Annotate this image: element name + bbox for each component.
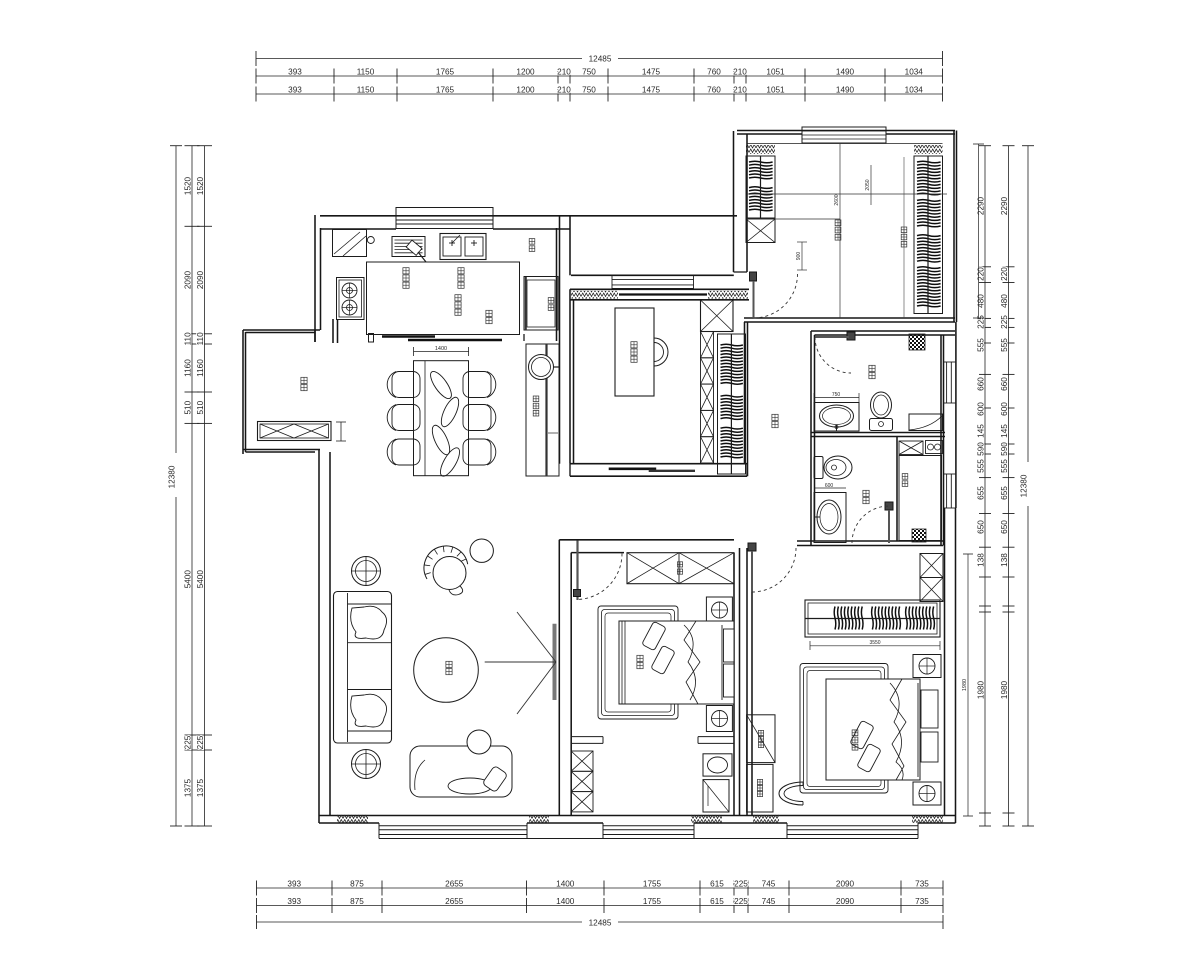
svg-text:480: 480	[977, 294, 986, 308]
svg-text:1034: 1034	[905, 68, 924, 77]
svg-text:2600: 2600	[834, 194, 840, 205]
svg-text:12485: 12485	[589, 919, 612, 928]
svg-text:555: 555	[977, 338, 986, 352]
svg-text:875: 875	[350, 880, 364, 889]
svg-text:750: 750	[582, 86, 596, 95]
svg-text:110: 110	[184, 332, 193, 345]
svg-text:393: 393	[288, 68, 302, 77]
svg-text:1034: 1034	[905, 86, 924, 95]
svg-text:1150: 1150	[357, 86, 375, 95]
svg-text:110: 110	[196, 332, 205, 345]
svg-text:12380: 12380	[1020, 474, 1029, 497]
svg-text:1520: 1520	[184, 176, 193, 195]
svg-text:600: 600	[1000, 402, 1009, 416]
svg-text:555: 555	[977, 459, 986, 473]
svg-text:220: 220	[977, 267, 986, 281]
svg-text:1520: 1520	[196, 176, 205, 195]
svg-text:2050: 2050	[865, 179, 871, 190]
svg-text:1980: 1980	[962, 679, 968, 691]
svg-text:510: 510	[196, 400, 205, 414]
svg-text:480: 480	[1000, 294, 1009, 308]
svg-text:225: 225	[1000, 315, 1009, 329]
svg-text:2290: 2290	[977, 196, 986, 215]
svg-text:1400: 1400	[556, 880, 575, 889]
svg-text:1051: 1051	[766, 86, 785, 95]
svg-text:225: 225	[977, 315, 986, 329]
svg-text:745: 745	[762, 880, 776, 889]
svg-text:555: 555	[1000, 338, 1009, 352]
svg-text:5400: 5400	[184, 570, 193, 589]
svg-text:1765: 1765	[436, 86, 455, 95]
svg-text:1980: 1980	[977, 680, 986, 699]
svg-text:655: 655	[977, 486, 986, 500]
svg-text:2090: 2090	[196, 270, 205, 289]
svg-text:750: 750	[582, 68, 596, 77]
svg-text:1375: 1375	[184, 778, 193, 797]
svg-text:875: 875	[350, 897, 364, 906]
svg-text:225: 225	[184, 735, 193, 749]
svg-text:3550: 3550	[869, 640, 880, 646]
svg-text:1490: 1490	[836, 68, 855, 77]
svg-text:600: 600	[977, 402, 986, 416]
svg-text:750: 750	[832, 392, 841, 398]
svg-text:900: 900	[796, 252, 802, 261]
svg-text:760: 760	[707, 86, 721, 95]
svg-text:735: 735	[915, 880, 929, 889]
svg-text:1755: 1755	[643, 880, 662, 889]
svg-text:1160: 1160	[184, 359, 193, 377]
svg-text:12485: 12485	[589, 55, 612, 64]
svg-text:745: 745	[762, 897, 776, 906]
svg-text:1375: 1375	[196, 778, 205, 797]
svg-text:1755: 1755	[643, 897, 662, 906]
svg-text:210: 210	[557, 68, 571, 77]
svg-text:138: 138	[977, 553, 986, 567]
svg-text:590: 590	[1000, 442, 1009, 456]
svg-text:225: 225	[734, 880, 748, 889]
svg-text:655: 655	[1000, 486, 1009, 500]
svg-text:1051: 1051	[766, 68, 785, 77]
svg-text:210: 210	[557, 86, 571, 95]
svg-text:210: 210	[733, 86, 747, 95]
svg-text:1765: 1765	[436, 68, 455, 77]
svg-text:1200: 1200	[516, 68, 535, 77]
svg-text:5400: 5400	[196, 570, 205, 589]
svg-text:2655: 2655	[445, 897, 464, 906]
svg-text:600: 600	[825, 483, 834, 489]
svg-text:1475: 1475	[642, 68, 661, 77]
svg-text:225: 225	[196, 735, 205, 749]
svg-text:2090: 2090	[836, 897, 855, 906]
svg-text:1490: 1490	[836, 86, 855, 95]
svg-text:1150: 1150	[357, 68, 375, 77]
svg-text:220: 220	[1000, 267, 1009, 281]
svg-text:393: 393	[287, 897, 301, 906]
svg-text:1400: 1400	[435, 346, 447, 352]
svg-text:650: 650	[1000, 520, 1009, 534]
svg-text:1400: 1400	[556, 897, 575, 906]
svg-text:393: 393	[288, 86, 302, 95]
svg-text:650: 650	[977, 520, 986, 534]
svg-text:393: 393	[287, 880, 301, 889]
svg-text:555: 555	[1000, 459, 1009, 473]
svg-text:12380: 12380	[168, 465, 177, 488]
svg-text:1980: 1980	[1000, 680, 1009, 699]
svg-text:2655: 2655	[445, 880, 464, 889]
svg-text:1160: 1160	[196, 359, 205, 377]
svg-text:2090: 2090	[184, 270, 193, 289]
svg-text:1475: 1475	[642, 86, 661, 95]
svg-text:210: 210	[733, 68, 747, 77]
svg-text:660: 660	[1000, 377, 1009, 391]
svg-text:2090: 2090	[836, 880, 855, 889]
svg-text:2290: 2290	[1000, 196, 1009, 215]
svg-text:145: 145	[1000, 424, 1009, 438]
svg-text:225: 225	[734, 897, 748, 906]
svg-text:510: 510	[184, 400, 193, 414]
svg-text:138: 138	[1000, 553, 1009, 567]
svg-text:760: 760	[707, 68, 721, 77]
svg-text:660: 660	[977, 377, 986, 391]
svg-text:1200: 1200	[516, 86, 535, 95]
svg-text:145: 145	[977, 424, 986, 438]
svg-text:615: 615	[710, 880, 724, 889]
svg-text:615: 615	[710, 897, 724, 906]
svg-text:590: 590	[977, 442, 986, 456]
svg-text:735: 735	[915, 897, 929, 906]
